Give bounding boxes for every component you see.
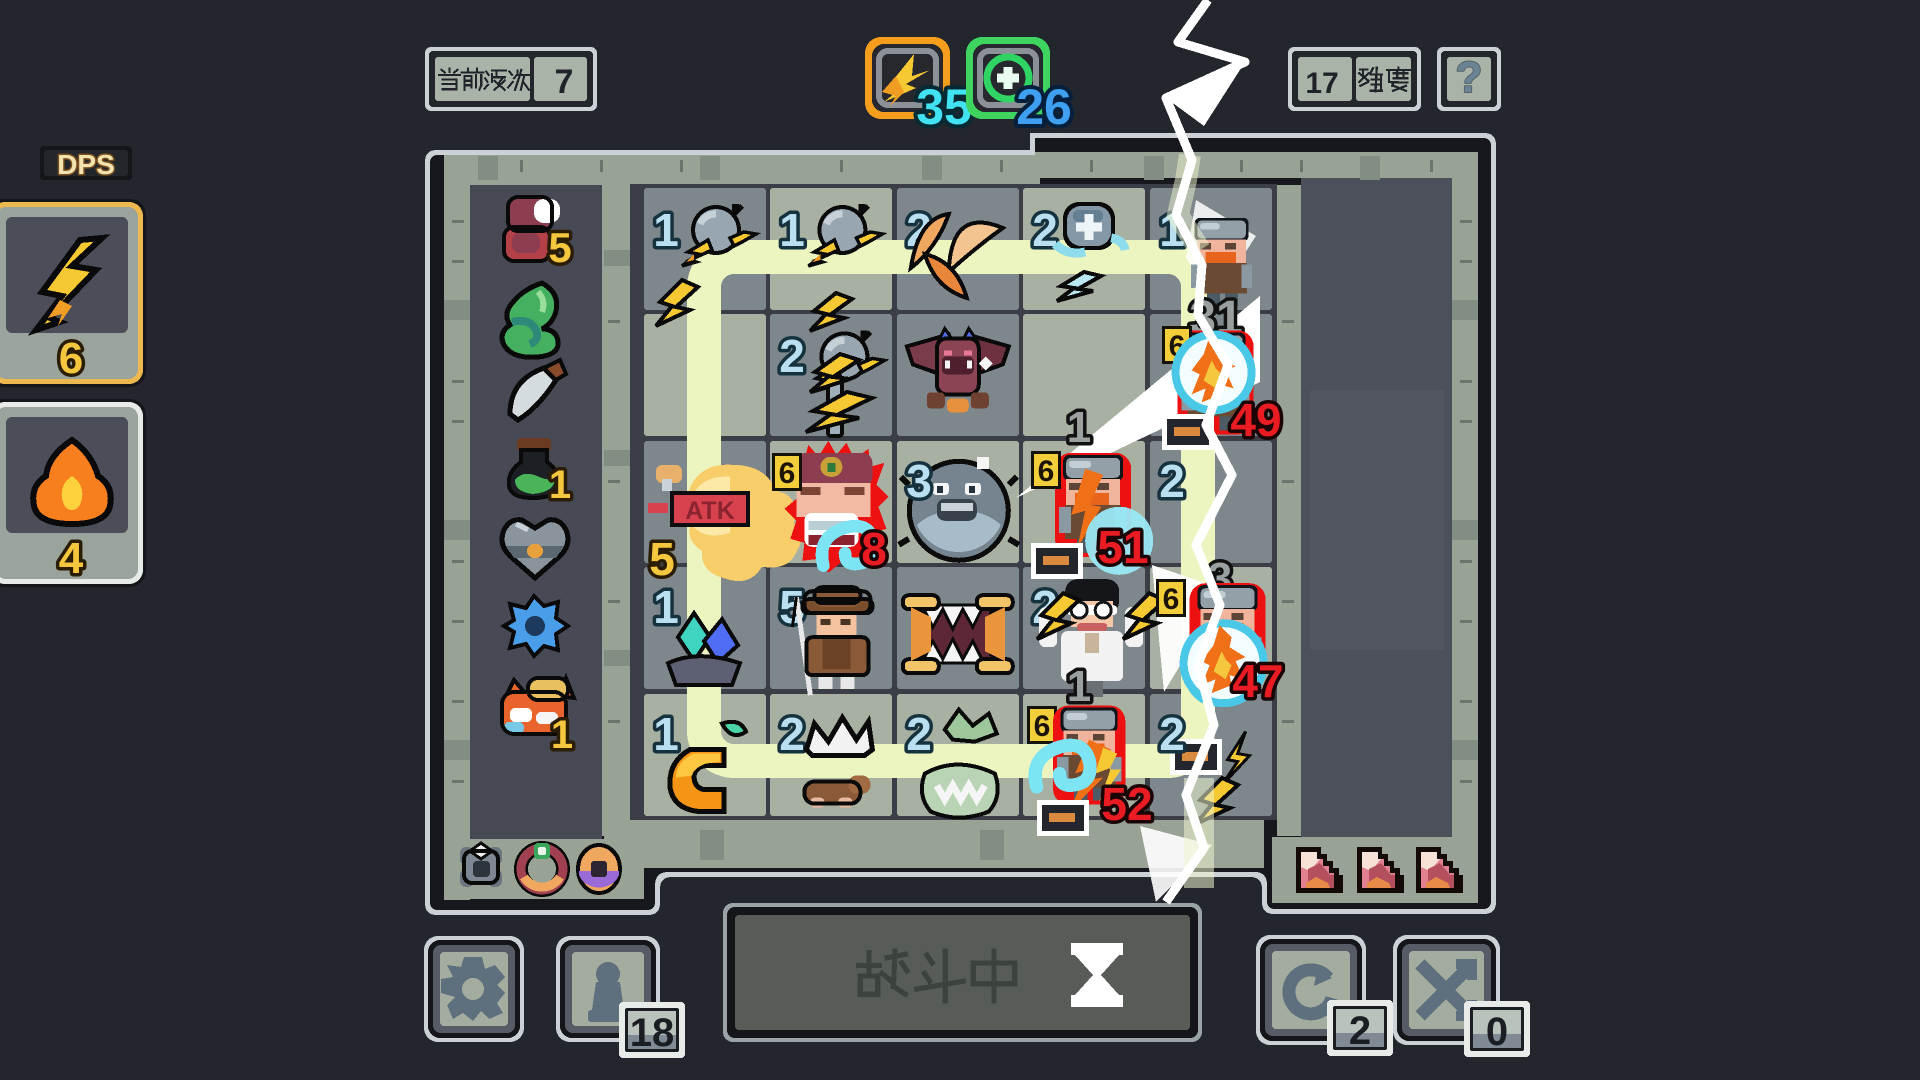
svg-text:2: 2	[779, 330, 805, 382]
svg-text:26: 26	[1016, 79, 1072, 135]
svg-text:?: ?	[1456, 53, 1483, 102]
svg-text:0: 0	[1486, 1010, 1508, 1054]
svg-text:17: 17	[1305, 67, 1338, 100]
svg-text:2: 2	[1159, 708, 1185, 760]
svg-text:6: 6	[1163, 583, 1180, 616]
svg-text:5: 5	[548, 224, 571, 271]
svg-text:2: 2	[906, 708, 932, 760]
svg-text:2: 2	[779, 708, 805, 760]
svg-text:DPS: DPS	[57, 149, 115, 180]
svg-text:51: 51	[1097, 521, 1148, 573]
svg-text:4: 4	[59, 534, 84, 583]
svg-text:6: 6	[1034, 710, 1051, 743]
svg-text:1: 1	[779, 204, 805, 256]
svg-text:1: 1	[653, 708, 679, 760]
svg-text:47: 47	[1232, 655, 1283, 707]
svg-text:6: 6	[1038, 455, 1055, 488]
svg-text:1: 1	[653, 204, 679, 256]
svg-text:7: 7	[555, 63, 574, 101]
svg-text:2: 2	[1159, 455, 1185, 507]
svg-text:ATK: ATK	[685, 497, 735, 525]
svg-text:1: 1	[549, 463, 571, 507]
svg-text:1: 1	[1067, 403, 1091, 452]
svg-text:6: 6	[59, 334, 83, 383]
svg-text:1: 1	[1067, 662, 1091, 711]
svg-text:49: 49	[1230, 394, 1281, 446]
svg-text:52: 52	[1101, 778, 1152, 830]
svg-text:1: 1	[551, 713, 573, 757]
svg-text:5: 5	[649, 533, 675, 585]
svg-text:6: 6	[779, 457, 796, 490]
svg-text:35: 35	[916, 79, 972, 135]
svg-text:2: 2	[1349, 1009, 1371, 1053]
svg-text:8: 8	[861, 523, 887, 575]
svg-text:1: 1	[653, 581, 679, 633]
svg-text:3: 3	[906, 455, 932, 507]
svg-text:18: 18	[630, 1011, 675, 1055]
